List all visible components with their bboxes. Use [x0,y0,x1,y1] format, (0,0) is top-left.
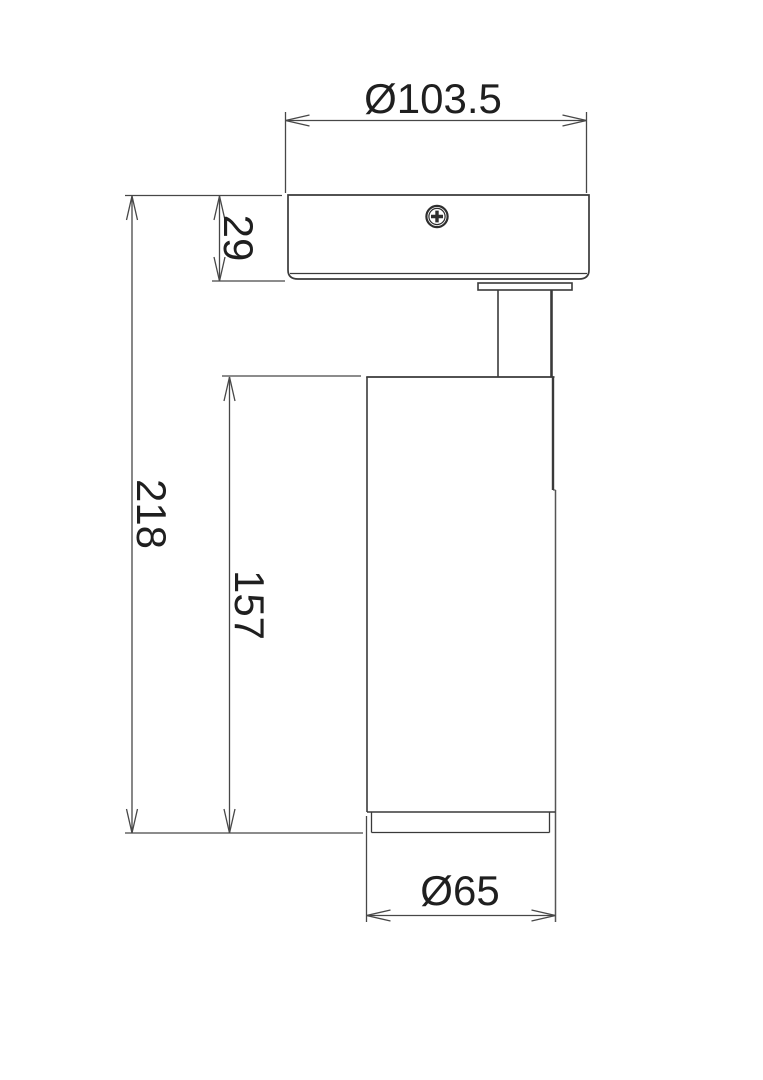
mounting-canopy [288,195,589,279]
dimension-canopy-height: 29 [212,196,285,281]
label-top-diameter: Ø103.5 [364,75,502,122]
dimension-body-height: 157 [125,376,363,833]
bottom-trim-ring [372,812,550,833]
dimension-top-diameter: Ø103.5 [286,75,587,193]
mounting-bracket [478,283,572,377]
label-body-diameter: Ø65 [420,867,499,914]
dimension-total-height: 218 [125,196,282,834]
label-body-height: 157 [226,570,273,640]
technical-drawing-canvas: Ø103.5 29 218 157 [0,0,763,1080]
label-canopy-height: 29 [215,215,262,262]
spotlight-dimension-drawing: Ø103.5 29 218 157 [0,0,763,1080]
bracket-plate [478,283,572,290]
lamp-body [366,377,555,922]
canopy-outline [288,195,589,279]
label-total-height: 218 [128,479,175,549]
